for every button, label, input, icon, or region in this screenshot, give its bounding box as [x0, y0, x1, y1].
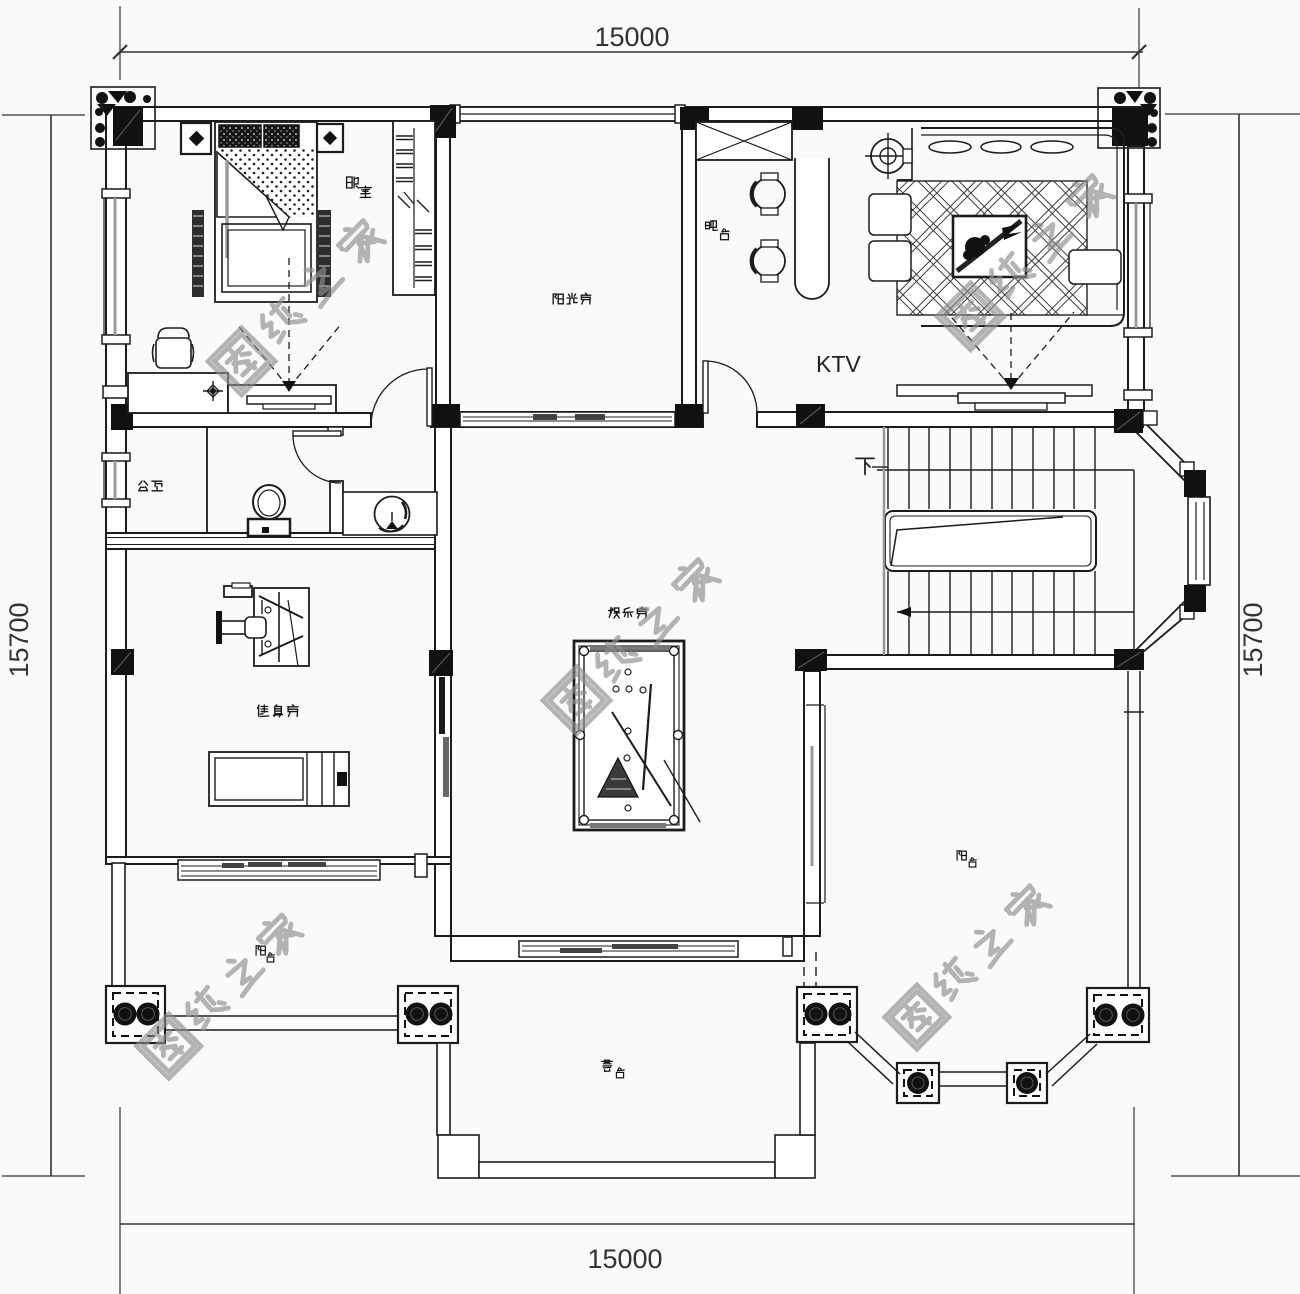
svg-text:KTV: KTV	[816, 351, 861, 377]
svg-text:15000: 15000	[587, 1244, 662, 1274]
svg-text:15700: 15700	[1238, 602, 1268, 677]
svg-text:15700: 15700	[4, 602, 34, 677]
svg-text:15000: 15000	[594, 22, 669, 52]
